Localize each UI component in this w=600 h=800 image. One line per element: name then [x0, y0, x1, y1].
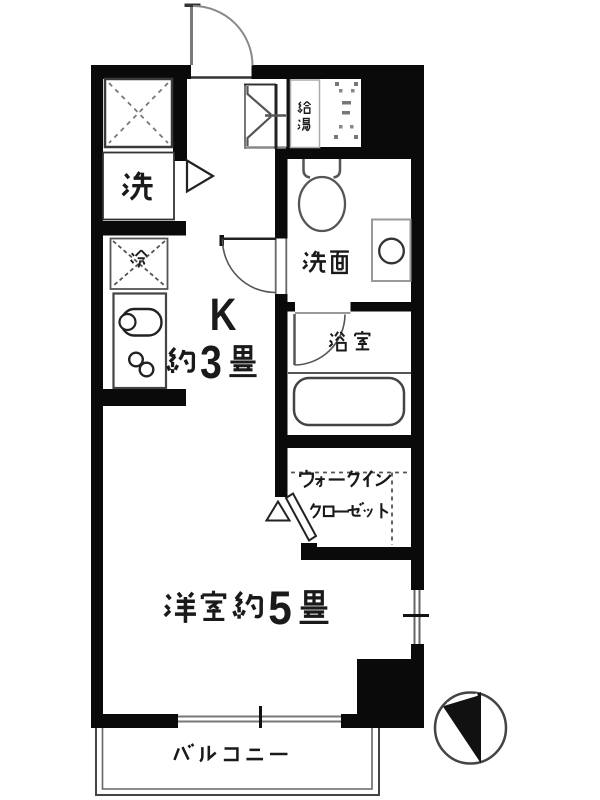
svg-text:5: 5: [268, 583, 292, 635]
svg-text:K: K: [210, 290, 237, 340]
svg-text:3: 3: [200, 337, 222, 389]
